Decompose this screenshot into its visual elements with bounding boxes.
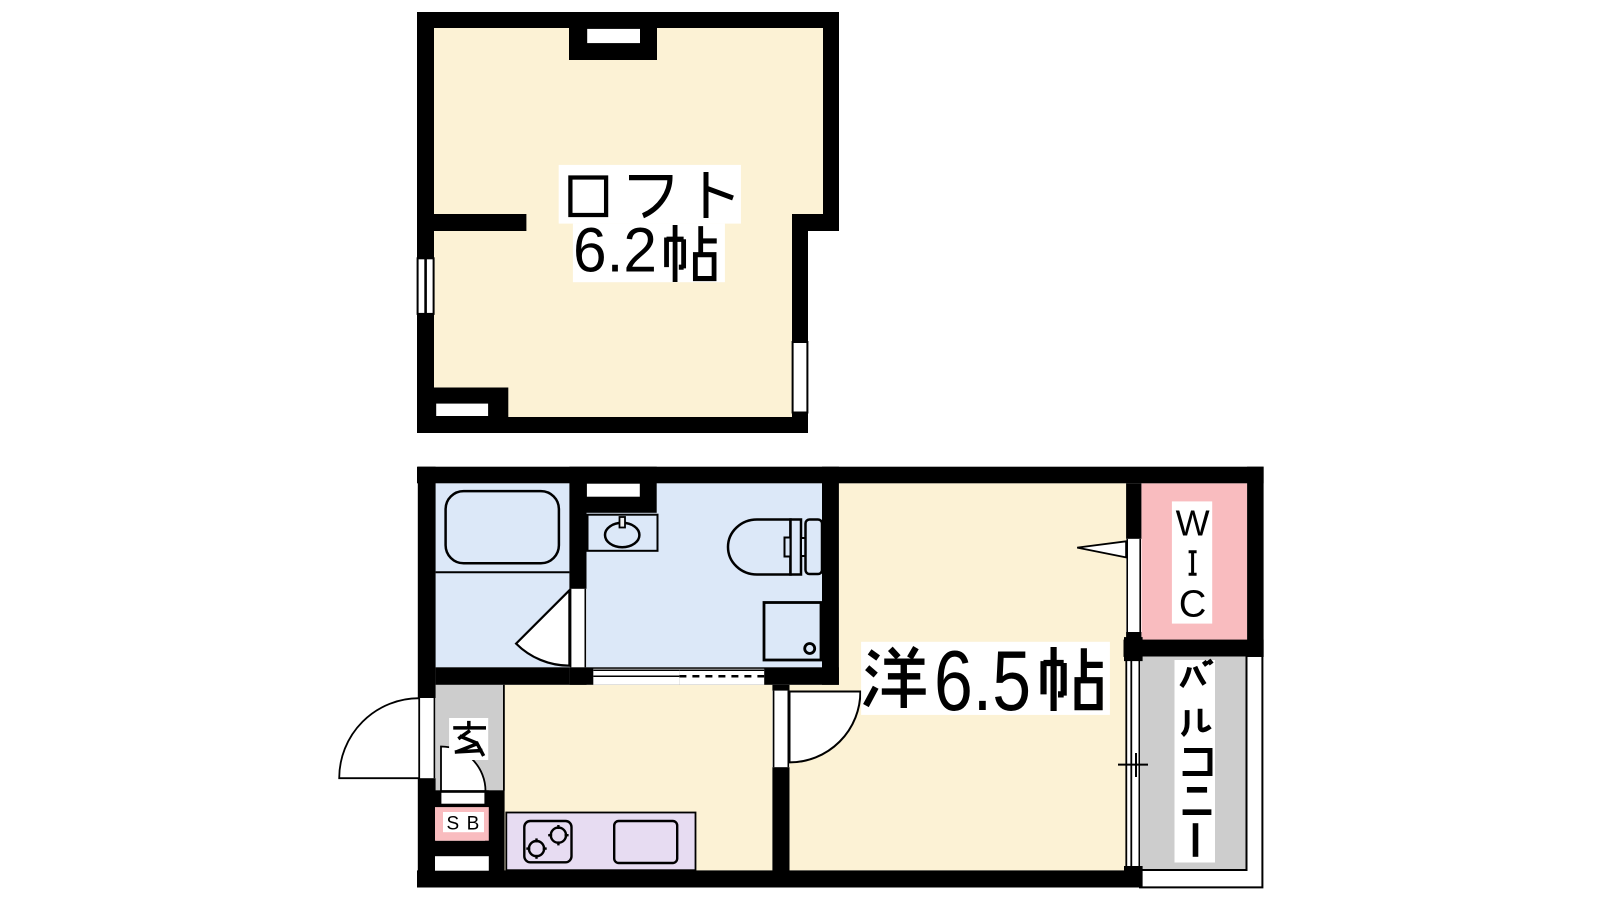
svg-text:W: W bbox=[1176, 502, 1210, 543]
svg-text:SB: SB bbox=[447, 814, 487, 835]
svg-text:6.2: 6.2 bbox=[573, 216, 657, 286]
svg-text:6.5: 6.5 bbox=[934, 634, 1031, 729]
svg-text:C: C bbox=[1179, 584, 1206, 626]
